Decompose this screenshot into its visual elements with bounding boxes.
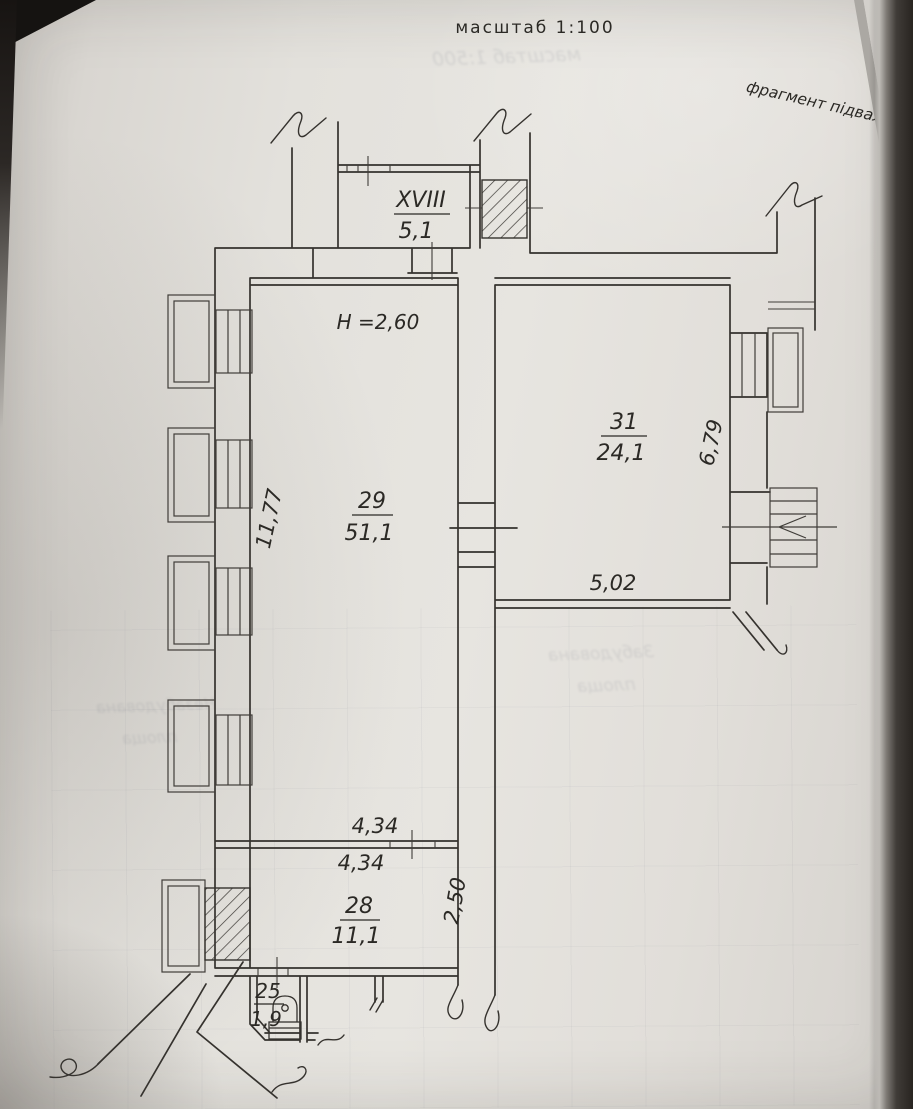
floor-plan-drawing: масштаб 1:100 фрагмент підвалу XVIII 5,1…: [0, 0, 913, 1109]
room-label-XVIII: XVIII 5,1: [394, 188, 450, 244]
room-area: 51,1: [345, 521, 394, 546]
photo-dark-right-edge: [869, 0, 913, 1109]
dim-partition-above: 4,34: [352, 814, 399, 838]
room-number: 25: [255, 979, 280, 1003]
room-number: 31: [610, 410, 638, 435]
dim-partition-below: 4,34: [338, 851, 385, 875]
scale-label: масштаб 1:100: [455, 18, 614, 38]
hatched-pier-top: [482, 180, 527, 238]
room-number: 29: [358, 489, 386, 514]
windows-left-wall: [216, 310, 252, 785]
room-area: 1,9: [250, 1007, 282, 1031]
room-label-28: 28 11,1: [332, 894, 381, 949]
stair-direction-arrow-icon: [722, 516, 837, 538]
paper-sheet: масштаб 1:500 Забудована площа Незабудов…: [0, 0, 913, 1109]
dim-room31-width: 5,02: [590, 571, 637, 595]
ceiling-height-label: H =2,60: [337, 310, 420, 334]
entrance-stairs: [722, 488, 837, 567]
room-label-29: 29 51,1: [345, 489, 394, 546]
room-area: 11,1: [332, 924, 381, 949]
room-number: XVIII: [395, 188, 446, 213]
hatched-pier-bottom-left: [205, 888, 250, 960]
window-right-wall: [742, 328, 803, 412]
room-number: 28: [345, 894, 373, 919]
room-label-31: 31 24,1: [597, 410, 647, 466]
photo-of-plan: масштаб 1:500 Забудована площа Незабудов…: [0, 0, 913, 1109]
dim-room28-depth: 2,50: [439, 876, 471, 926]
dim-right-depth: 6,79: [694, 417, 727, 468]
room-area: 5,1: [399, 219, 434, 244]
dim-left-wall: 11,77: [251, 486, 287, 550]
window-wells-left: [162, 295, 215, 972]
room-label-25: 25 1,9: [250, 979, 284, 1031]
room-area: 24,1: [597, 441, 646, 466]
